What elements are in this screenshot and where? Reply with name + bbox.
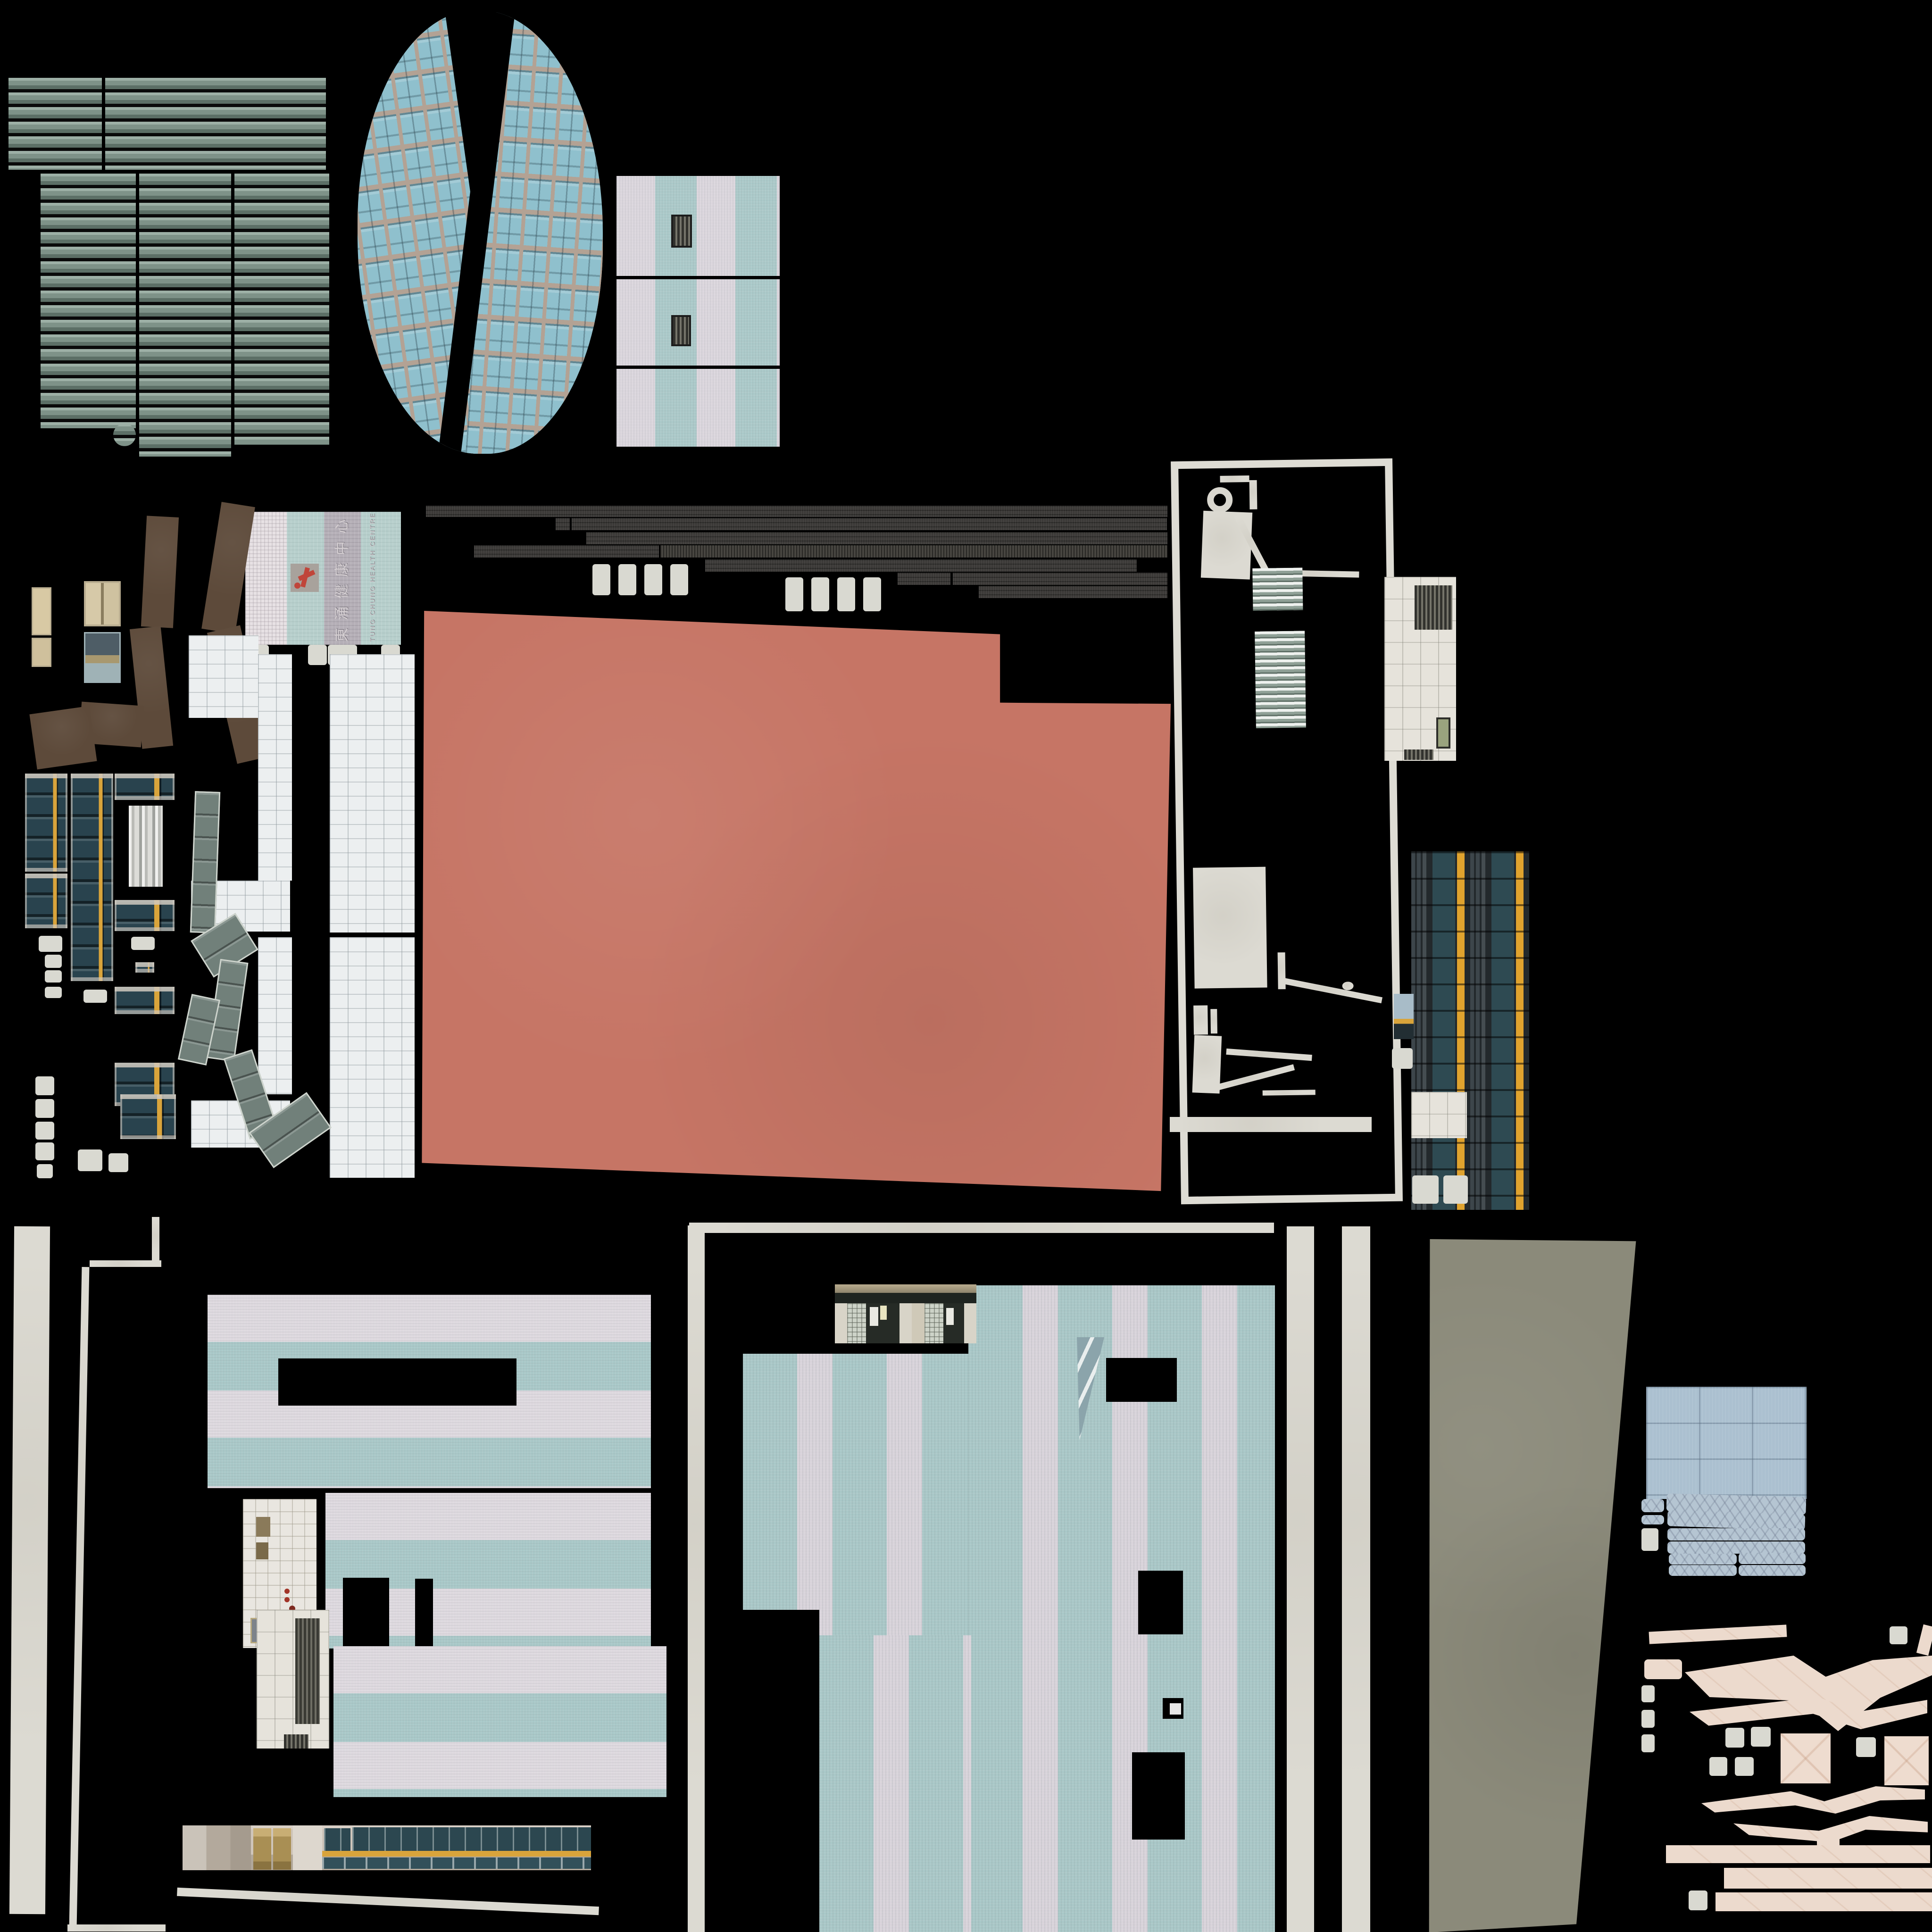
peach-zigzag — [1690, 1697, 1927, 1732]
peach-bar — [1724, 1868, 1932, 1889]
vent-bar — [811, 577, 829, 611]
frame-line — [67, 1924, 166, 1932]
tile-chip — [308, 645, 327, 665]
uv-outline-box — [1171, 458, 1403, 1204]
stair-wedge — [1077, 1337, 1104, 1440]
sign-text-english: TUNG CHUNG HEALTH CENTRE — [368, 515, 378, 642]
blue-slat — [1667, 1541, 1805, 1554]
sign-logo — [291, 564, 319, 592]
tile-chip — [1725, 1728, 1744, 1748]
uv-cutout — [343, 1578, 389, 1649]
roof-trim-strip — [586, 532, 1167, 544]
window-glass-low — [322, 1857, 591, 1869]
window-glass — [352, 1827, 591, 1851]
frame-bar — [1342, 1226, 1370, 1932]
tile-chip — [83, 990, 107, 1003]
uv-cutout — [1106, 1358, 1177, 1402]
white-facade-piece — [1411, 1092, 1467, 1138]
peach-diamond — [1884, 1736, 1929, 1785]
louver-slats-col-e — [234, 174, 329, 445]
tile-chip — [1641, 1734, 1655, 1752]
glass-block-panel — [924, 1303, 943, 1343]
entrance-storefront — [835, 1284, 976, 1343]
ground-floor-facade — [183, 1825, 591, 1870]
striped-building-a — [208, 1295, 651, 1488]
white-grid-panel — [258, 654, 292, 881]
white-grid-panel — [330, 937, 415, 1178]
gold-glass-panel — [115, 774, 175, 800]
striped-wall-section-3 — [616, 369, 780, 447]
gold-glass-column — [71, 774, 113, 981]
striped-tower-left — [743, 1354, 968, 1635]
frame-bar — [1287, 1226, 1314, 1932]
fire-dot — [284, 1597, 290, 1602]
vent-bar — [837, 577, 855, 611]
frame-line — [177, 1888, 599, 1915]
roof-trim-strip — [898, 573, 950, 585]
tile-chip — [1751, 1727, 1771, 1747]
gold-glass-panel — [115, 987, 175, 1014]
gold-glass-panel — [115, 900, 175, 931]
brown-trim — [141, 516, 179, 628]
vent-bar — [592, 564, 610, 595]
entry-door — [943, 1303, 964, 1343]
gold-glass-column — [25, 874, 67, 928]
roof-trim-ribbed — [660, 545, 1167, 558]
small-window — [1436, 717, 1450, 749]
roof-trim-strip — [705, 559, 1137, 572]
peach-bar — [1715, 1892, 1932, 1911]
peach-zigzag — [1701, 1786, 1925, 1814]
roof-trim-strip — [953, 573, 1167, 585]
dark-gold-facade — [1411, 851, 1529, 1210]
glass-block-panel — [847, 1303, 866, 1343]
sign-text-chinese: 東涌健康中心 — [330, 515, 348, 642]
blue-slat — [1669, 1565, 1737, 1576]
uv-cutout — [278, 1358, 516, 1406]
gold-glass-column — [25, 774, 67, 872]
tile-chip — [131, 937, 155, 950]
door-notice — [880, 1306, 887, 1320]
entry-door — [866, 1303, 899, 1343]
wall-picture — [256, 1517, 270, 1537]
pilaster — [964, 1303, 976, 1343]
outline-bar — [1220, 475, 1249, 483]
curtainwall-oval — [358, 10, 603, 454]
gold-door — [273, 1828, 291, 1870]
roof-trim-strip — [572, 518, 1167, 530]
white-grid-panel — [189, 635, 258, 718]
pilaster — [899, 1303, 912, 1343]
blue-slat — [1739, 1553, 1806, 1564]
vent-bar — [670, 564, 688, 595]
vent-grille — [1415, 585, 1452, 630]
texture-atlas-canvas: 東涌健康中心TUNG CHUNG HEALTH CENTRE — [0, 0, 1932, 1932]
silver-curtain — [129, 806, 163, 887]
glass-gold-chip — [1394, 994, 1414, 1039]
louver-slats-col-c — [41, 174, 136, 428]
peach-strip — [1649, 1624, 1787, 1644]
peach-diamond — [1781, 1733, 1831, 1783]
tile-chip — [45, 970, 62, 983]
uv-cutout — [1138, 1571, 1183, 1634]
salmon-roof-plane — [419, 611, 1171, 1196]
tile-chip — [1890, 1626, 1907, 1644]
tile-chip — [35, 1142, 54, 1160]
tile-chip — [1689, 1890, 1707, 1910]
louver-slats-col-a — [8, 78, 102, 170]
roof-trim-notch — [556, 518, 570, 530]
white-grid-panel — [330, 654, 415, 933]
gold-door — [253, 1828, 271, 1870]
frame-line — [152, 1217, 159, 1264]
fire-dot — [284, 1589, 290, 1594]
mirror-cladding — [183, 1825, 251, 1870]
door-notice — [870, 1307, 878, 1326]
uv-cutout — [743, 1610, 819, 1635]
service-door — [84, 581, 121, 626]
louver-disc — [113, 424, 136, 446]
vent-grille — [1404, 749, 1433, 760]
tile-chip — [1856, 1737, 1876, 1757]
tile-chip — [1443, 1175, 1468, 1204]
vent-bar — [785, 577, 803, 611]
outline-ring — [1207, 487, 1233, 513]
striped-building-c — [333, 1646, 666, 1797]
striped-tower-main — [968, 1285, 1275, 1932]
tile-chip — [78, 1149, 102, 1171]
outline-line — [1283, 978, 1382, 1003]
tile-chip — [1392, 1048, 1413, 1069]
roof-trim-strip — [474, 545, 659, 558]
roof-trim-strip — [426, 506, 1167, 517]
vent-door — [671, 215, 692, 248]
white-facade-vent — [1384, 577, 1456, 761]
concrete-slab — [1428, 1239, 1638, 1932]
striped-wall-section-2 — [616, 279, 780, 366]
gold-glass-chip — [135, 962, 154, 973]
peach-block — [1644, 1659, 1682, 1679]
blue-slat — [1641, 1499, 1664, 1512]
white-grid-panel — [258, 937, 292, 1094]
vent-grille — [295, 1618, 320, 1724]
white-dot — [1170, 1703, 1181, 1715]
outline-bar — [1210, 1009, 1217, 1033]
striped-wall-section-1 — [616, 176, 780, 276]
tile-chip — [1412, 1175, 1439, 1204]
glass-zigzag-segment — [190, 791, 220, 933]
frame-bar — [689, 1223, 1274, 1233]
louver-grille-block — [1255, 631, 1306, 728]
tile-chip — [1641, 1685, 1655, 1702]
tile-chip — [35, 1076, 54, 1095]
uv-cutout — [415, 1579, 433, 1649]
louver-slats-col-d — [139, 174, 231, 457]
vent-door — [671, 315, 691, 346]
outline-bar — [1193, 1005, 1208, 1034]
frame-bar — [1170, 1117, 1372, 1132]
outline-line — [1226, 1049, 1312, 1061]
tile-chip — [35, 1122, 54, 1140]
white-facade-grille — [257, 1610, 329, 1749]
blue-slat — [1739, 1565, 1806, 1576]
tile-chip — [45, 987, 62, 998]
pilaster — [835, 1303, 847, 1343]
window-glass — [324, 1828, 350, 1851]
peach-bar — [1817, 1839, 1840, 1845]
tile-chip — [1735, 1757, 1754, 1776]
outline-bar — [1249, 480, 1257, 509]
outline-block — [1201, 511, 1252, 580]
tile-chip — [1641, 1528, 1658, 1551]
louver-grille-block — [1252, 567, 1303, 610]
tile-chip — [108, 1153, 128, 1172]
tile-chip — [35, 1099, 54, 1118]
outline-line — [1215, 1064, 1295, 1091]
tile-chip — [45, 955, 62, 968]
tan-panel — [32, 638, 51, 667]
louver-slats-col-b — [105, 78, 326, 170]
striped-building-b — [325, 1493, 651, 1649]
brown-slab — [29, 706, 97, 770]
uv-cutout — [1132, 1752, 1185, 1840]
blue-slat — [1667, 1528, 1805, 1541]
health-centre-sign: 東涌健康中心TUNG CHUNG HEALTH CENTRE — [245, 512, 401, 645]
sign-text-wrap: 東涌健康中心TUNG CHUNG HEALTH CENTRE — [325, 515, 360, 642]
vent-bar — [644, 564, 662, 595]
wall-picture — [256, 1542, 268, 1559]
tile-chip — [1709, 1757, 1727, 1776]
frame-bar — [688, 1225, 705, 1932]
interior-window — [84, 632, 121, 683]
peach-bar — [1666, 1845, 1930, 1863]
blue-panel-grid — [1646, 1387, 1807, 1499]
sign-white-column — [245, 512, 287, 645]
roof-trim-strip — [979, 586, 1167, 598]
tile-chip — [39, 936, 62, 952]
yellow-band — [322, 1851, 591, 1857]
outline-dot — [1342, 982, 1353, 990]
tile-chip — [1641, 1710, 1655, 1728]
gray-pillar — [9, 1226, 50, 1914]
blue-slat — [1669, 1554, 1737, 1565]
frame-line — [90, 1260, 161, 1267]
gold-glass-panel — [120, 1094, 176, 1139]
outline-line — [1263, 1090, 1316, 1096]
sign-band: 東涌健康中心TUNG CHUNG HEALTH CENTRE — [324, 512, 361, 645]
logo-figure-dot — [294, 583, 300, 589]
vent-bar — [863, 577, 881, 611]
vent-bar — [618, 564, 636, 595]
frame-line — [69, 1267, 90, 1927]
tile-chip — [37, 1164, 53, 1178]
vent-grille — [284, 1734, 308, 1749]
metal-band — [835, 1284, 976, 1293]
transom — [835, 1293, 976, 1303]
blue-slat — [1641, 1515, 1664, 1524]
tan-panel — [32, 587, 51, 635]
outline-slab — [1193, 867, 1267, 989]
peach-sliver — [1916, 1624, 1932, 1656]
door-notice — [946, 1308, 954, 1325]
striped-tower-lower — [819, 1635, 971, 1932]
stone-pilaster — [293, 1825, 322, 1870]
